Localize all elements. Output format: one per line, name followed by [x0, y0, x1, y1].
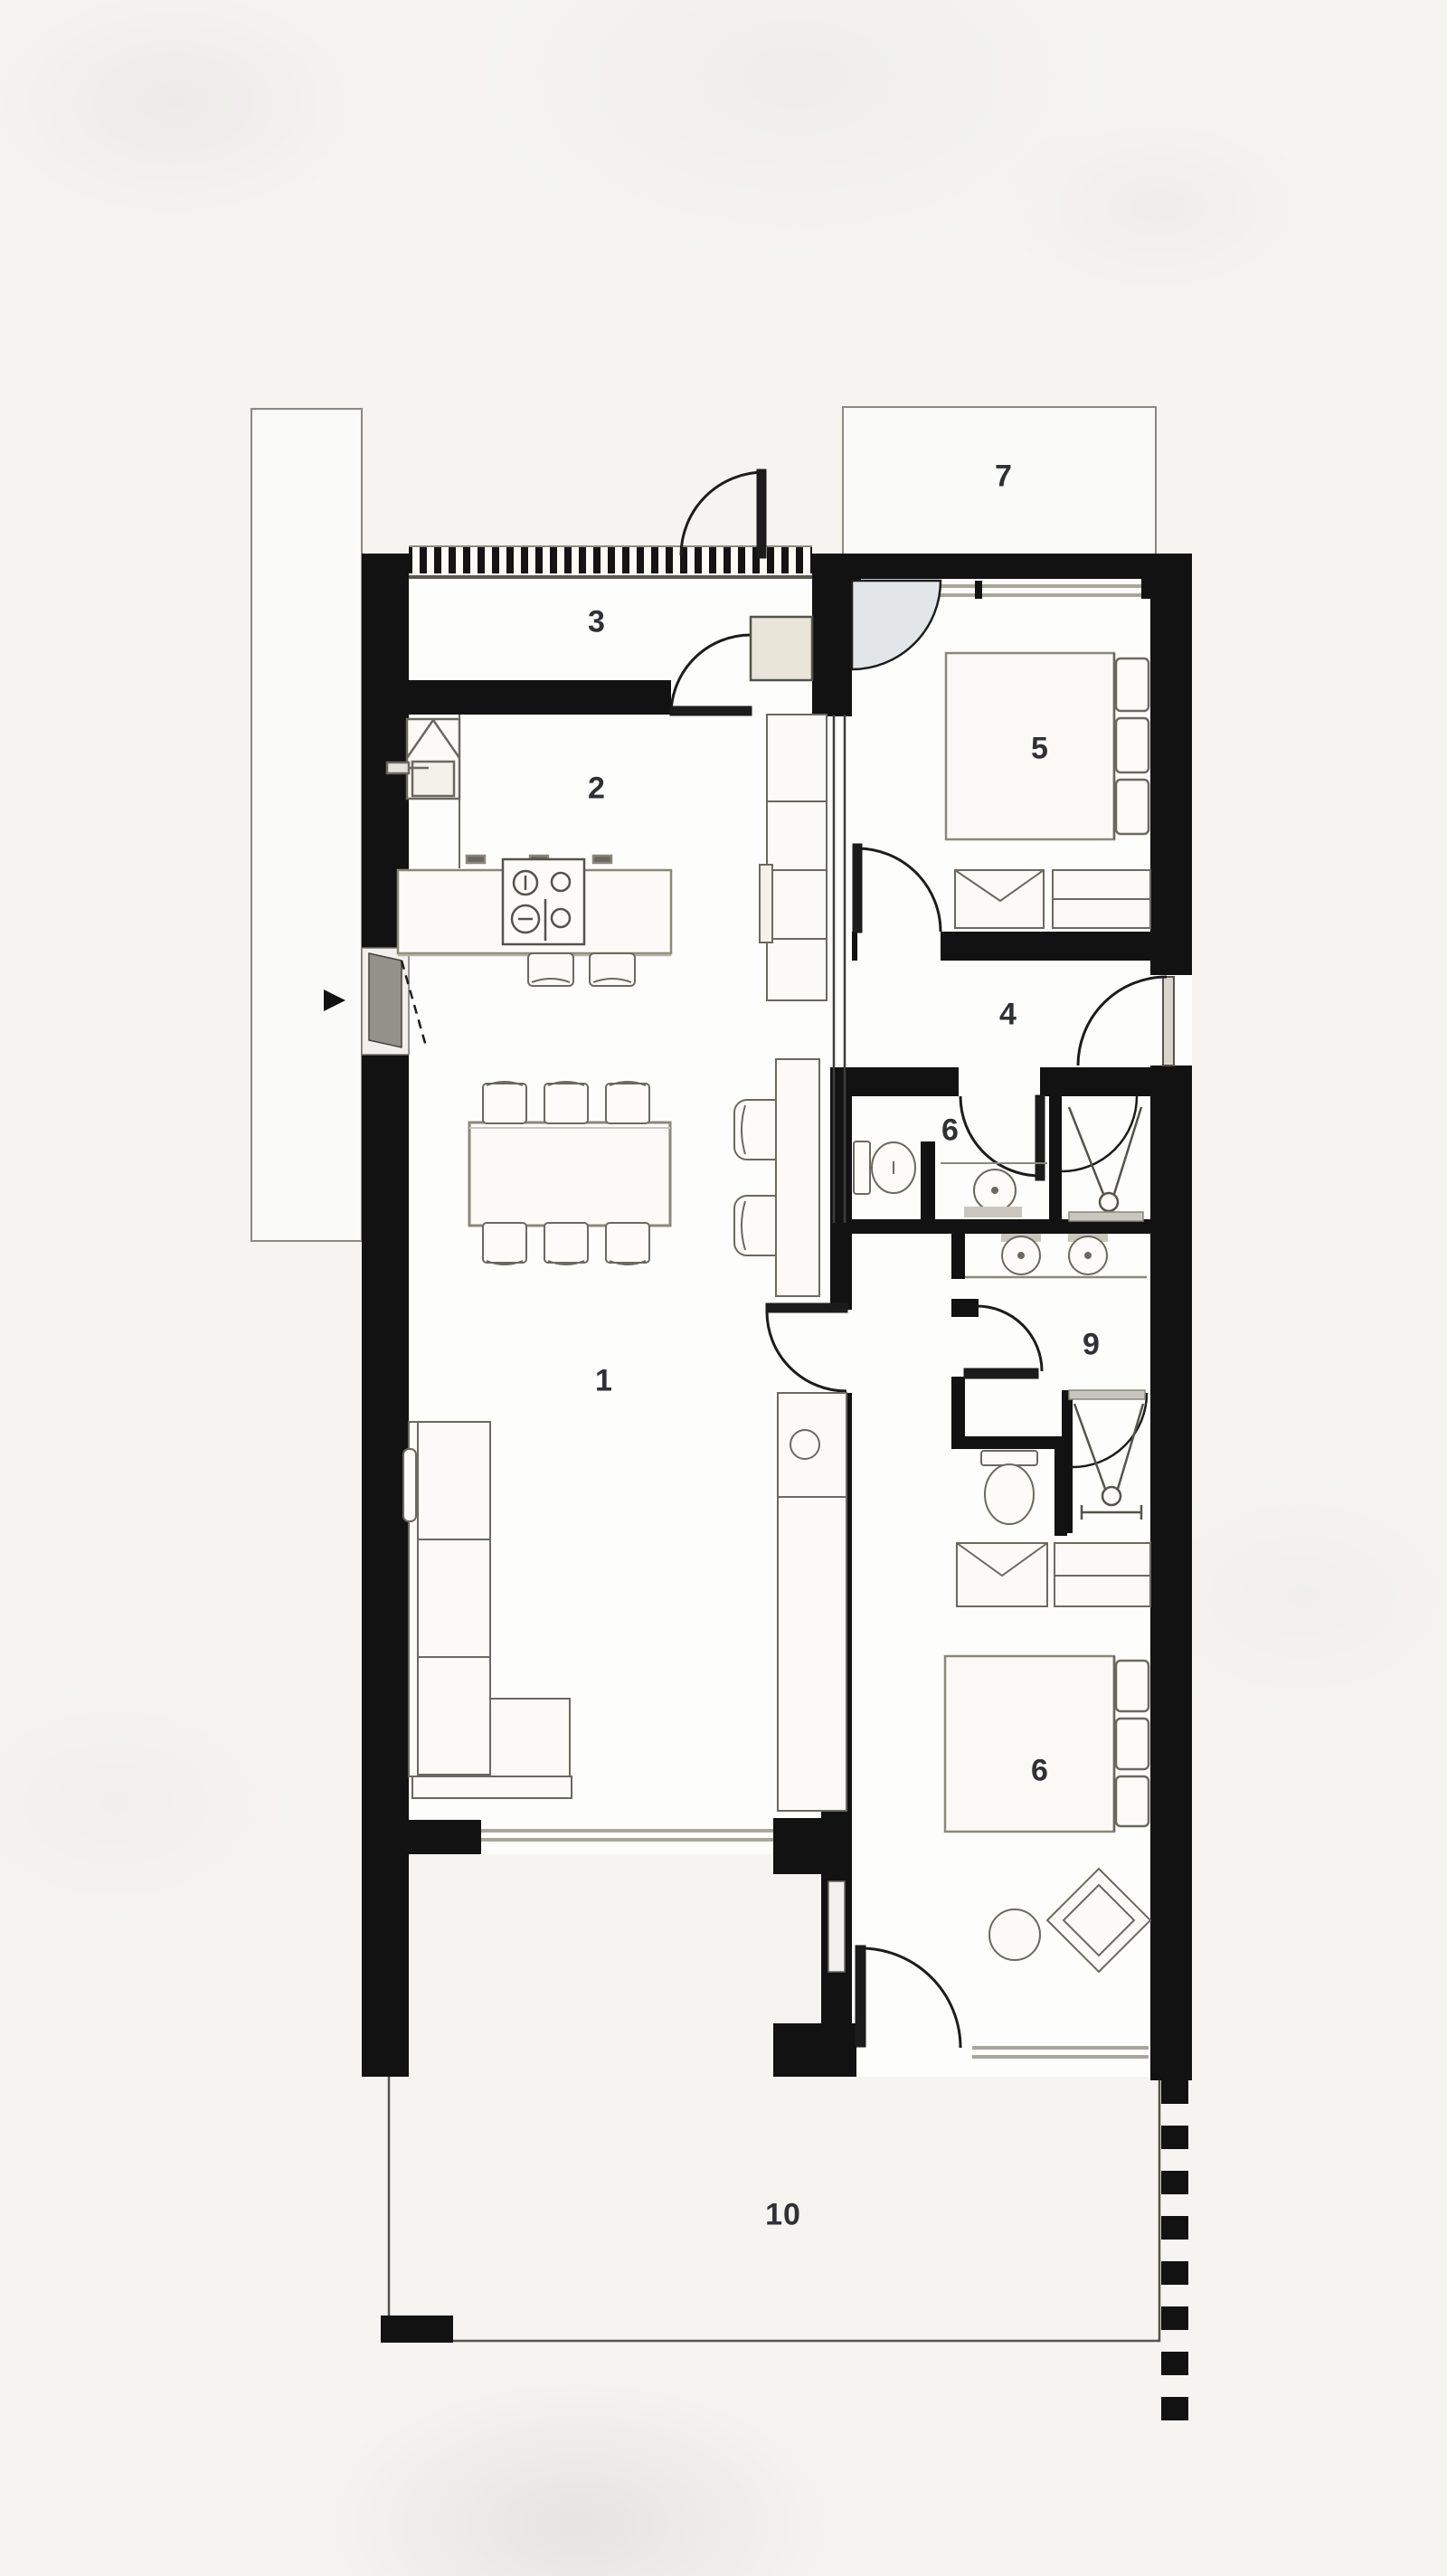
- room-label-corridor: 4: [999, 998, 1017, 1033]
- room-label-entry: 3: [588, 605, 606, 640]
- bedroom-bench-top: [955, 870, 1150, 928]
- dining-table: [469, 1122, 670, 1226]
- room-label-ensuite: 9: [1083, 1328, 1101, 1363]
- round-side-table: [989, 1909, 1040, 1960]
- toilet-bathroom: [854, 1141, 915, 1194]
- wall-niche: [828, 1881, 845, 1972]
- kitchen-island-cooktop: [398, 856, 671, 955]
- bedroom-bench-bottom: [957, 1543, 1150, 1606]
- tall-cabinet: [760, 715, 827, 1000]
- property-line-dashes: [1161, 2035, 1188, 2420]
- room-label-terrace-bottom: 10: [765, 2198, 801, 2233]
- room-label-living: 1: [595, 1364, 613, 1399]
- floor-plan-drawing: [0, 0, 1447, 2576]
- room-label-kitchen: 2: [588, 772, 606, 807]
- toilet-ensuite: [981, 1451, 1037, 1524]
- room-label-terrace-top: 7: [995, 459, 1013, 495]
- left-exterior-strip: [251, 409, 362, 1241]
- room-label-bedroom-top: 5: [1031, 732, 1049, 767]
- room-label-bathroom: 6: [941, 1113, 960, 1149]
- entry-wardrobe: [751, 617, 812, 680]
- floor-plan-canvas: 1 2 3 4 5 6 7 9 6 10: [0, 0, 1447, 2576]
- facade-insulation-hatch: [409, 546, 812, 577]
- media-cabinet: [778, 1393, 846, 1811]
- room-label-bedroom-bottom: 6: [1031, 1754, 1049, 1789]
- console-desk: [776, 1059, 819, 1296]
- double-bed-bottom: [945, 1656, 1149, 1832]
